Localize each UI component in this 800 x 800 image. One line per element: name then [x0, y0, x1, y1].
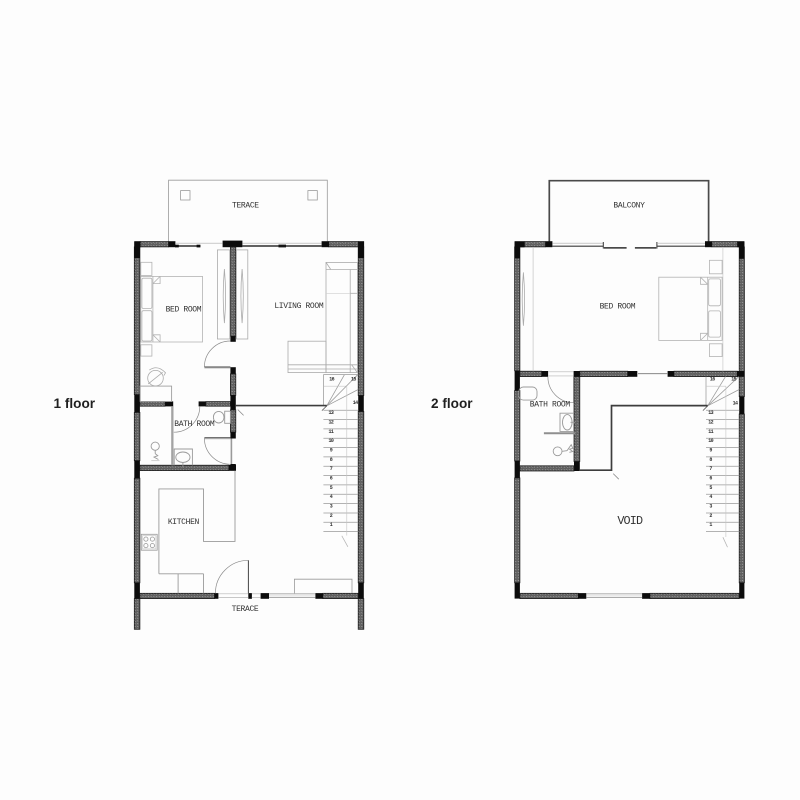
svg-text:2 floor: 2 floor	[431, 396, 473, 411]
svg-text:1 floor: 1 floor	[54, 396, 96, 411]
svg-text:14: 14	[733, 400, 738, 406]
svg-text:BALCONY: BALCONY	[613, 201, 645, 210]
svg-text:LIVING ROOM: LIVING ROOM	[274, 302, 324, 311]
svg-text:BATH ROOM: BATH ROOM	[530, 400, 571, 409]
svg-text:15: 15	[731, 377, 736, 383]
svg-text:15: 15	[351, 376, 356, 382]
svg-text:13: 13	[708, 410, 713, 416]
svg-text:10: 10	[708, 438, 713, 444]
svg-text:10: 10	[328, 438, 333, 444]
svg-text:16: 16	[329, 376, 334, 382]
svg-text:VOID: VOID	[617, 514, 643, 528]
svg-text:BED ROOM: BED ROOM	[166, 306, 202, 315]
svg-text:13: 13	[328, 410, 333, 416]
svg-text:BATH ROOM: BATH ROOM	[174, 420, 215, 429]
svg-text:11: 11	[328, 429, 333, 435]
svg-text:11: 11	[708, 429, 713, 435]
svg-text:KITCHEN: KITCHEN	[168, 518, 200, 527]
svg-text:14: 14	[353, 400, 358, 406]
svg-text:16: 16	[710, 377, 715, 383]
svg-text:12: 12	[328, 420, 333, 426]
svg-text:BED ROOM: BED ROOM	[600, 303, 636, 312]
svg-text:TERACE: TERACE	[232, 605, 259, 614]
svg-text:12: 12	[708, 420, 713, 426]
svg-text:TERACE: TERACE	[232, 201, 259, 210]
